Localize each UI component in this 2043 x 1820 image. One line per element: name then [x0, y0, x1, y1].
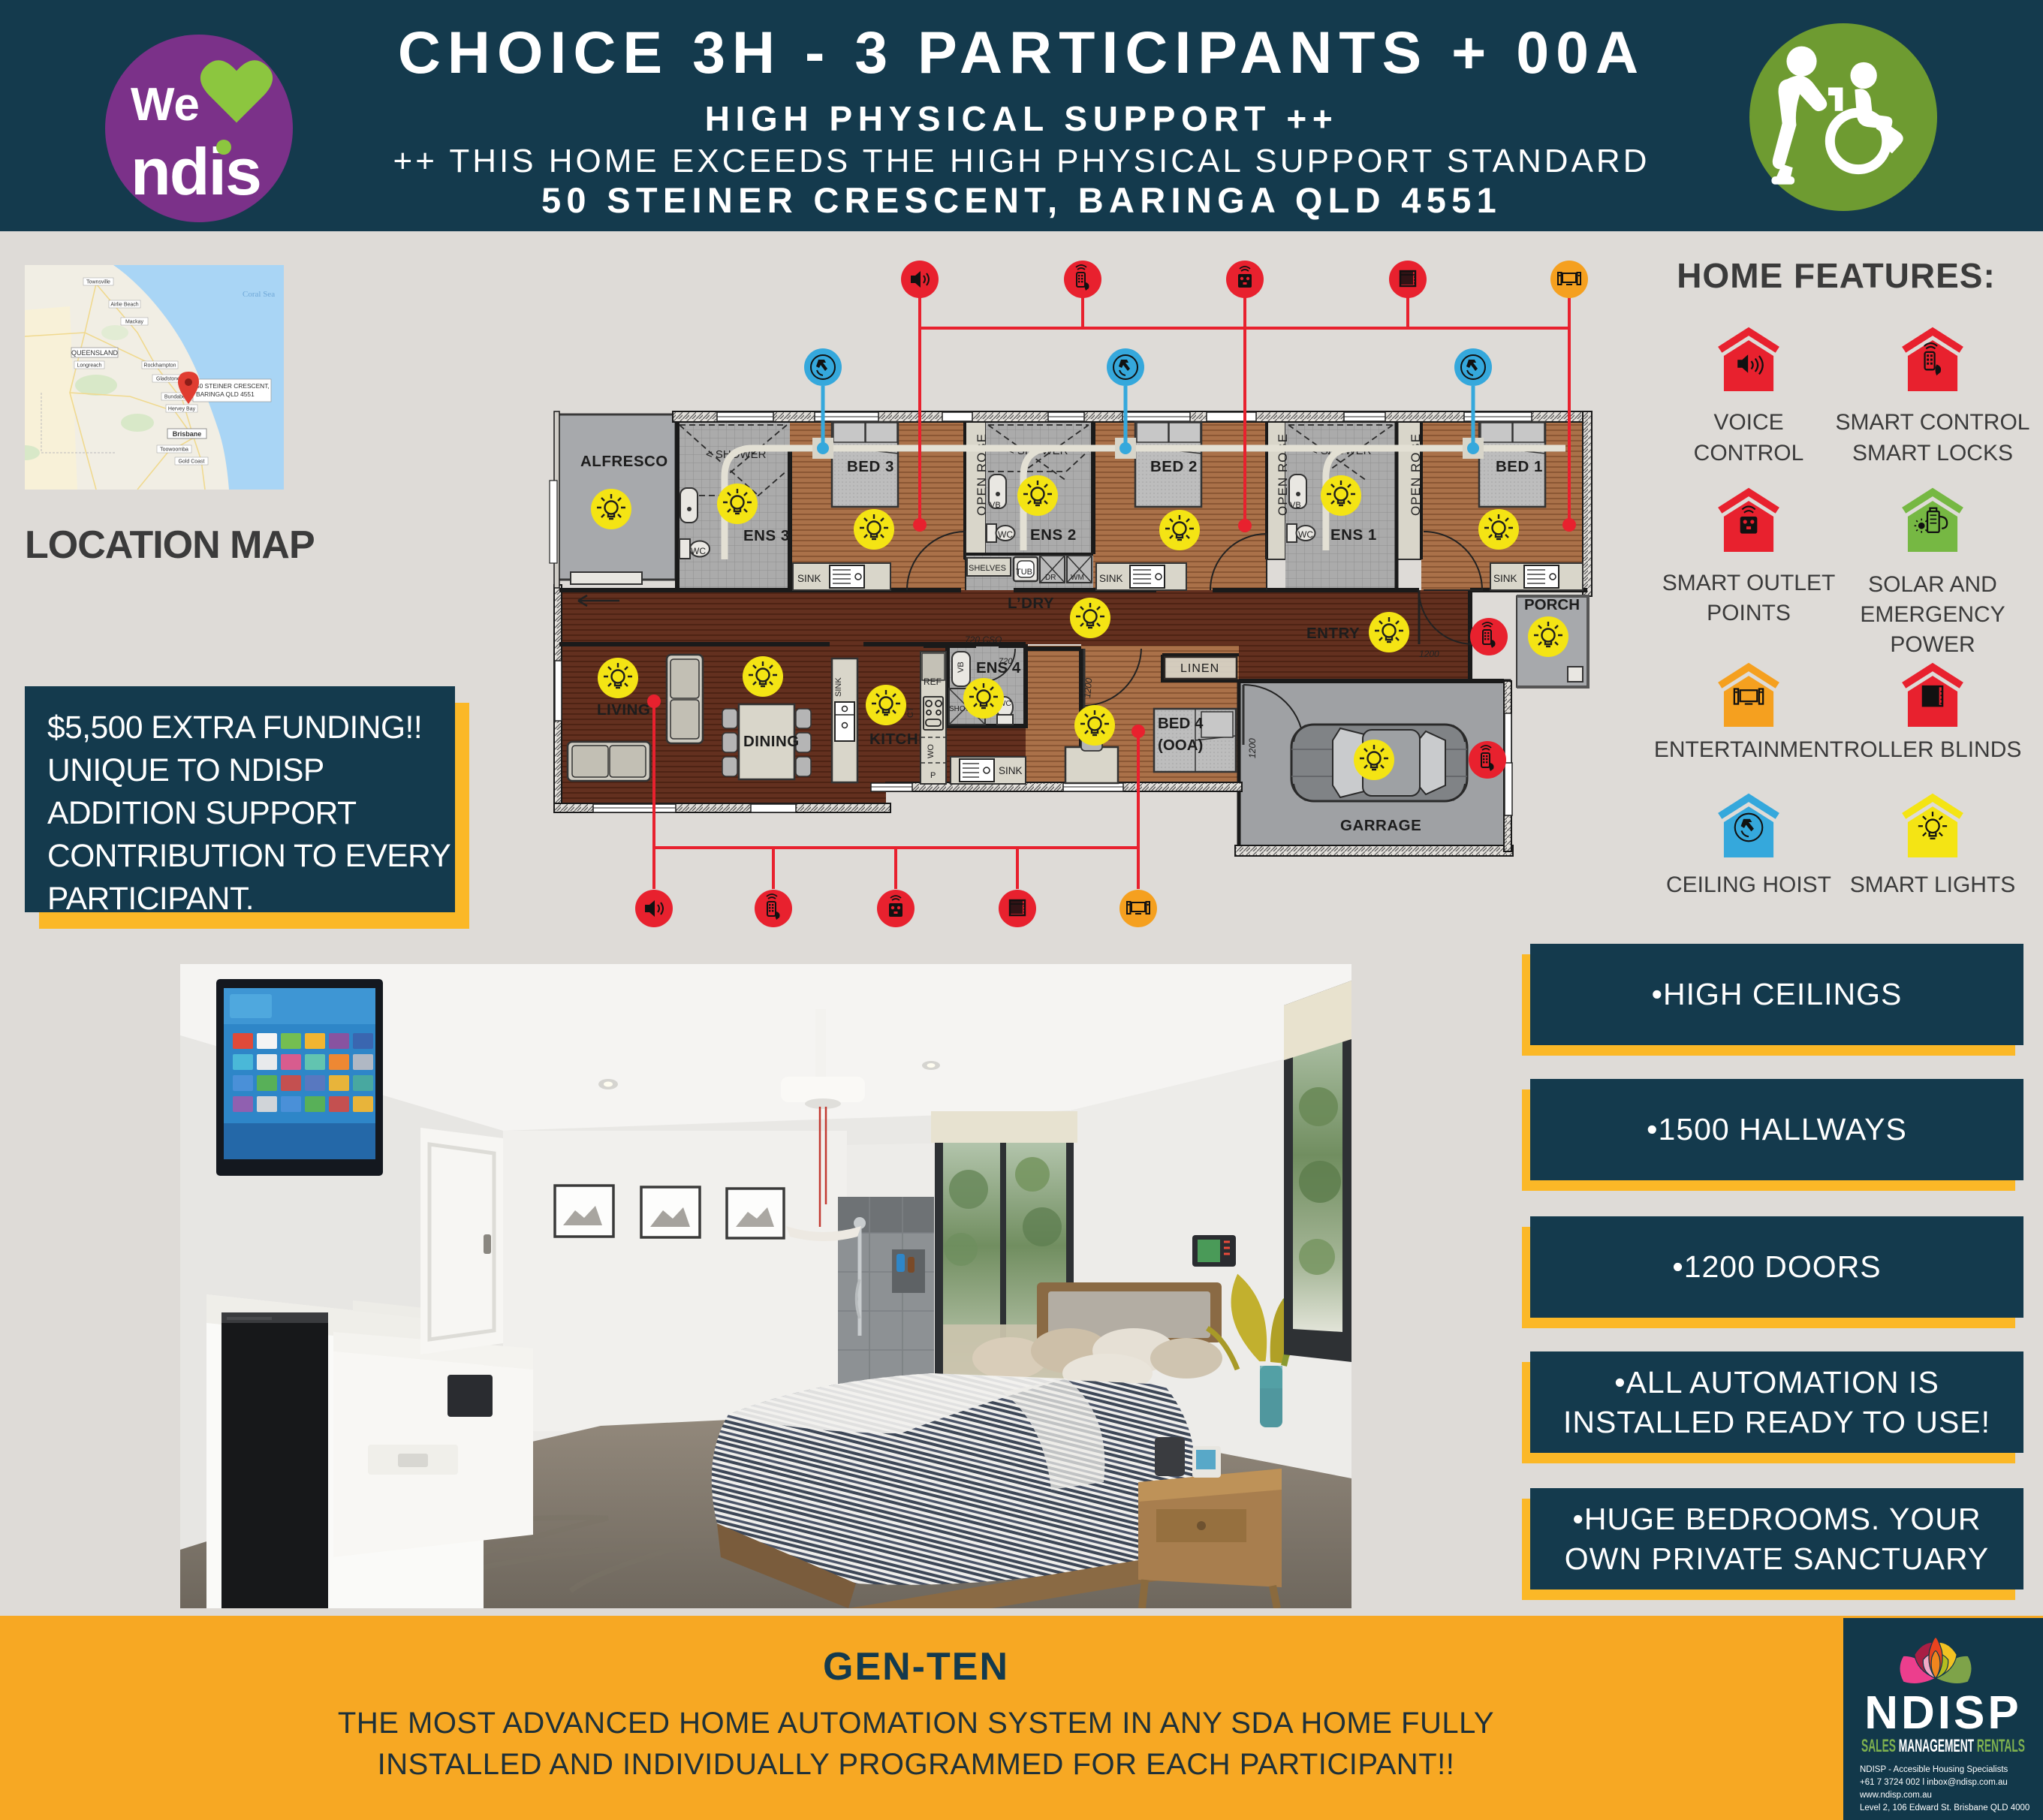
svg-text:WC: WC: [1298, 529, 1313, 540]
svg-text:L’DRY: L’DRY: [1008, 595, 1054, 612]
svg-text:ENS 2: ENS 2: [1030, 526, 1077, 544]
svg-text:50 STEINER CRESCENT,: 50 STEINER CRESCENT,: [196, 382, 270, 390]
svg-text:GARRAGE: GARRAGE: [1340, 817, 1421, 834]
svg-text:720 CSO: 720 CSO: [965, 634, 1002, 645]
svg-text:Hervey Bay: Hervey Bay: [168, 407, 196, 412]
svg-text:Coral Sea: Coral Sea: [243, 290, 275, 299]
svg-text:NDISP - Accesible Housing Spec: NDISP - Accesible Housing Specialists: [1860, 1765, 2008, 1774]
svg-text:Level 2, 106 Edward St. Brisba: Level 2, 106 Edward St. Brisbane QLD 400…: [1860, 1803, 2029, 1812]
svg-text:EMERGENCY: EMERGENCY: [1860, 602, 2005, 627]
svg-text:SINK: SINK: [1099, 573, 1123, 584]
svg-text:VB: VB: [957, 661, 966, 673]
svg-text:ENTERTAINMENT: ENTERTAINMENT: [1654, 737, 1843, 762]
svg-text:Gladstone: Gladstone: [156, 377, 180, 382]
svg-text:SMART LIGHTS: SMART LIGHTS: [1850, 872, 2016, 897]
svg-text:720: 720: [999, 657, 1013, 666]
svg-text:WO: WO: [927, 744, 936, 758]
svg-text:SHELVES: SHELVES: [969, 564, 1006, 573]
svg-text:ENTRY: ENTRY: [1306, 625, 1360, 642]
svg-text:SALES MANAGEMENT RENTALS: SALES MANAGEMENT RENTALS: [1861, 1736, 2025, 1756]
svg-text:SMART LOCKS: SMART LOCKS: [1852, 441, 2013, 466]
svg-text:1200: 1200: [1247, 738, 1258, 758]
svg-text:SMART CONTROL: SMART CONTROL: [1836, 410, 2030, 435]
svg-text:P: P: [930, 771, 936, 780]
svg-text:POINTS: POINTS: [1707, 601, 1791, 625]
svg-text:VB: VB: [990, 501, 1001, 510]
svg-text:CT: CT: [906, 707, 915, 718]
svg-text:Gold Coast: Gold Coast: [178, 460, 204, 465]
svg-text:DINING: DINING: [743, 733, 800, 750]
svg-text:Airlie Beach: Airlie Beach: [110, 303, 138, 308]
svg-text:ROLLER BLINDS: ROLLER BLINDS: [1844, 737, 2022, 762]
svg-text:1200: 1200: [1082, 677, 1094, 698]
svg-text:REF: REF: [924, 676, 942, 687]
svg-text:ENS 1: ENS 1: [1330, 526, 1377, 544]
svg-text:BED 3: BED 3: [847, 458, 894, 475]
svg-text:SMART OUTLET: SMART OUTLET: [1662, 571, 1836, 595]
svg-text:Rockhampton: Rockhampton: [143, 363, 176, 369]
svg-text:VOICE: VOICE: [1713, 410, 1783, 435]
svg-text:ENS 3: ENS 3: [743, 527, 790, 544]
svg-text:SOLAR AND: SOLAR AND: [1868, 572, 1997, 597]
svg-text:SINK: SINK: [797, 573, 821, 584]
svg-text:SINK: SINK: [834, 677, 843, 697]
svg-text:Longreach: Longreach: [77, 363, 101, 369]
svg-text:1200: 1200: [1419, 649, 1439, 659]
svg-text:LINEN: LINEN: [1180, 662, 1219, 675]
svg-text:SINK: SINK: [1493, 573, 1517, 584]
svg-text:(OOA): (OOA): [1158, 737, 1203, 754]
svg-text:POWER: POWER: [1890, 632, 1975, 657]
svg-text:Toowoomba: Toowoomba: [160, 447, 188, 453]
svg-text:ALFRESCO: ALFRESCO: [580, 453, 668, 470]
svg-text:WM: WM: [1071, 574, 1084, 582]
svg-text:TUB: TUB: [1016, 568, 1032, 577]
svg-text:LIVING: LIVING: [597, 701, 650, 719]
svg-text:Townsville: Townsville: [86, 280, 110, 285]
svg-text:SINK: SINK: [999, 765, 1023, 776]
svg-text:+61 7 3724 002 l inbox@ndisp.c: +61 7 3724 002 l inbox@ndisp.com.au: [1860, 1778, 2008, 1787]
svg-text:WC: WC: [691, 546, 706, 556]
svg-text:CEILING HOIST: CEILING HOIST: [1666, 872, 1831, 897]
svg-text:NDISP: NDISP: [1864, 1687, 2021, 1739]
svg-text:BED 2: BED 2: [1150, 458, 1198, 475]
svg-text:BARINGA QLD 4551: BARINGA QLD 4551: [196, 390, 255, 398]
svg-text:BED 1: BED 1: [1496, 458, 1543, 475]
svg-text:PORCH: PORCH: [1524, 596, 1580, 613]
svg-text:VB: VB: [1290, 501, 1301, 510]
svg-text:WC: WC: [998, 529, 1013, 540]
svg-text:Brisbane: Brisbane: [173, 430, 202, 438]
svg-text:CONTROL: CONTROL: [1694, 441, 1804, 466]
svg-text:BED 4: BED 4: [1158, 715, 1204, 732]
svg-text:Mackay: Mackay: [125, 320, 144, 325]
svg-text:DR: DR: [1045, 574, 1056, 582]
svg-text:www.ndisp.com.au: www.ndisp.com.au: [1859, 1791, 1932, 1800]
svg-text:QUEENSLAND: QUEENSLAND: [71, 349, 119, 357]
